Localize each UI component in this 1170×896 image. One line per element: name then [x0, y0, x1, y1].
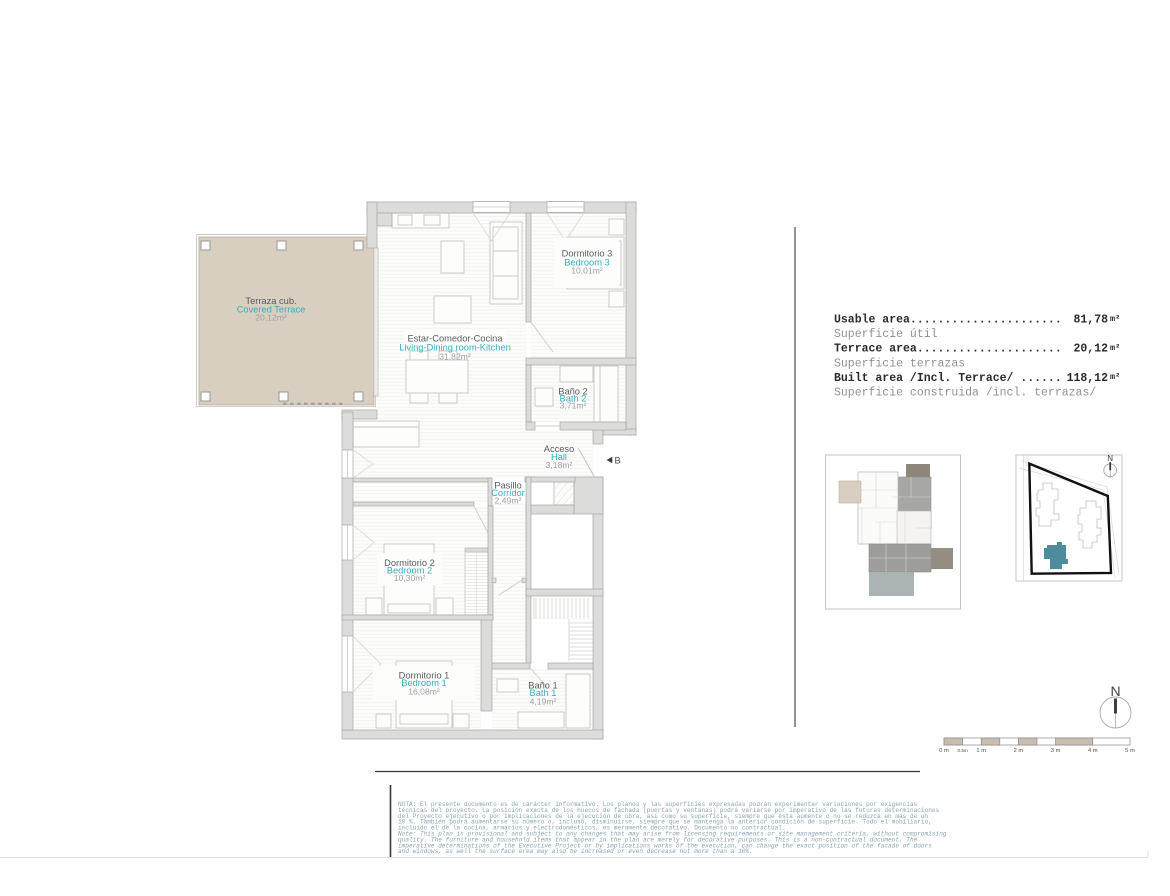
- svg-text:20,12: 20,12: [1073, 343, 1108, 356]
- svg-text:Built area /Incl. Terrace/ ...: Built area /Incl. Terrace/ ......: [834, 372, 1062, 385]
- svg-text:Superficie construida /incl. t: Superficie construida /incl. terrazas/: [834, 386, 1096, 399]
- svg-text:and windows, as well the surfa: and windows, as well the surface area ma…: [398, 848, 753, 855]
- svg-text:10,30m²: 10,30m²: [394, 573, 426, 583]
- svg-text:N: N: [1107, 454, 1113, 463]
- svg-text:1 m: 1 m: [976, 748, 986, 754]
- svg-text:81,78: 81,78: [1073, 314, 1108, 327]
- svg-text:20,12m²: 20,12m²: [255, 313, 287, 323]
- svg-text:2,49m²: 2,49m²: [495, 496, 522, 506]
- svg-text:2 m: 2 m: [1014, 748, 1024, 754]
- svg-text:0.5m: 0.5m: [957, 748, 967, 753]
- svg-text:10,01m²: 10,01m²: [571, 265, 603, 275]
- svg-text:4 m: 4 m: [1088, 748, 1098, 754]
- svg-text:3,18m²: 3,18m²: [546, 460, 573, 470]
- svg-text:5 m: 5 m: [1125, 748, 1135, 754]
- svg-text:31,82m²: 31,82m²: [439, 352, 471, 362]
- svg-text:Superficie útil: Superficie útil: [834, 328, 938, 341]
- svg-text:16,08m²: 16,08m²: [408, 686, 440, 696]
- svg-text:m²: m²: [1110, 314, 1120, 324]
- svg-text:Usable area...................: Usable area......................: [834, 314, 1062, 327]
- svg-text:118,12: 118,12: [1067, 372, 1109, 385]
- svg-text:3 m: 3 m: [1051, 748, 1061, 754]
- svg-text:m²: m²: [1110, 343, 1120, 353]
- svg-text:Superficie terrazas: Superficie terrazas: [834, 357, 965, 370]
- svg-text:0 m: 0 m: [939, 748, 949, 754]
- svg-text:B: B: [615, 455, 621, 465]
- svg-text:3,71m²: 3,71m²: [560, 401, 587, 411]
- svg-text:Terrace area..................: Terrace area.....................: [834, 343, 1062, 356]
- svg-text:m²: m²: [1110, 372, 1120, 382]
- svg-text:4,19m²: 4,19m²: [530, 697, 557, 707]
